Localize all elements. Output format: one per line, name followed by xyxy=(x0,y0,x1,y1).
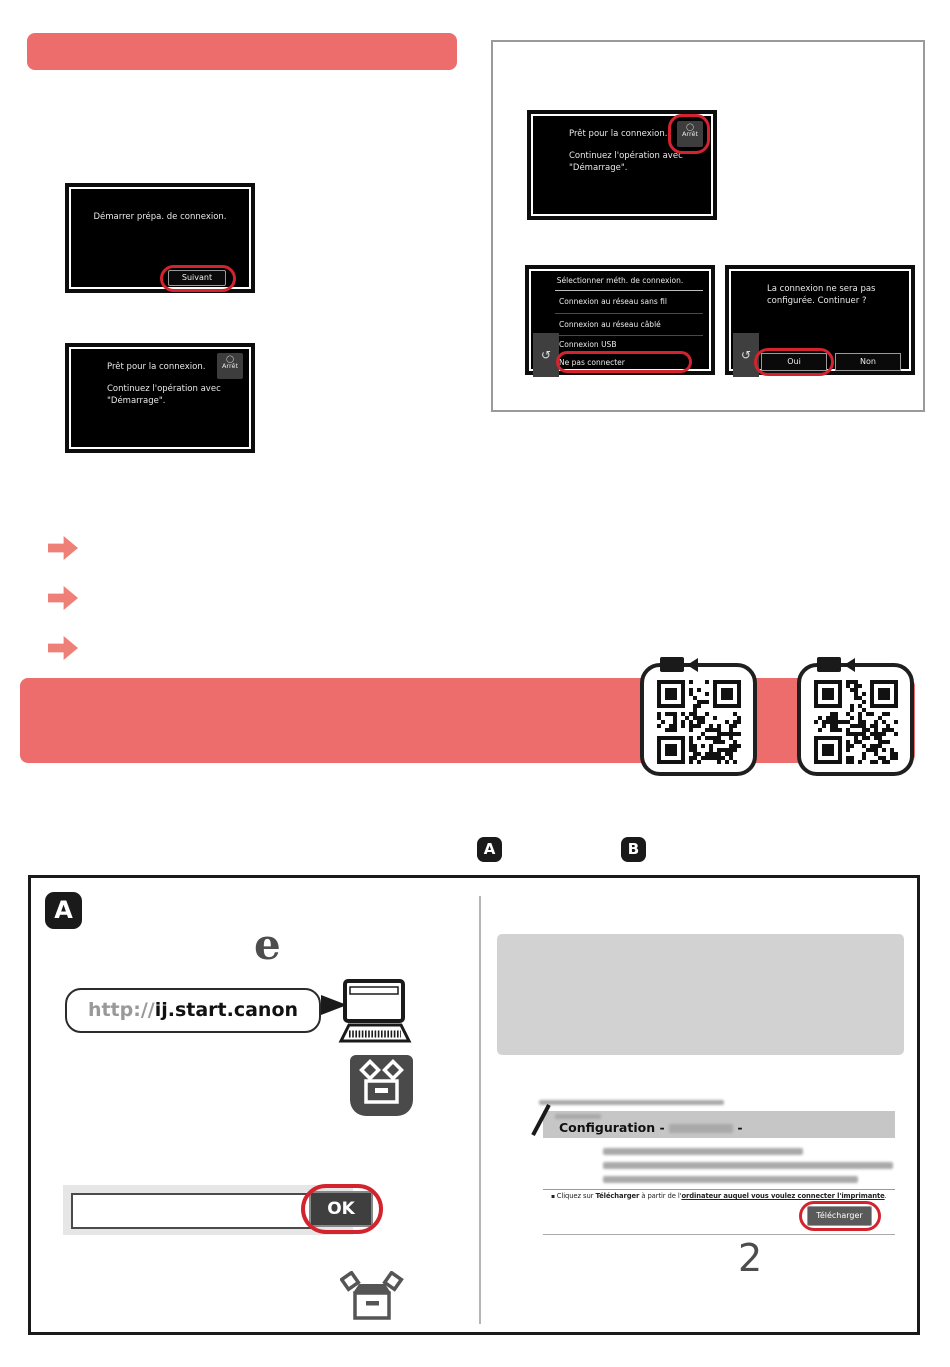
corner-mark xyxy=(531,1104,550,1136)
option-usb[interactable]: Connexion USB xyxy=(559,340,616,349)
lcd-select-method-screen: Sélectionner méth. de connexion. Connexi… xyxy=(525,265,715,375)
lcd-start-prep-message: Démarrer prépa. de connexion. xyxy=(71,211,249,223)
arrow-bullet-icon xyxy=(48,636,78,660)
section-a-badge: A xyxy=(45,892,82,929)
arrow-bullet-icon xyxy=(48,586,78,610)
back-icon: ↺ xyxy=(741,348,751,362)
back-icon: ↺ xyxy=(541,348,551,362)
lcd-ready-screen-arret: Prêt pour la connexion. Continuez l'opér… xyxy=(527,110,717,220)
ready-line1: Prêt pour la connexion. xyxy=(107,361,205,373)
qr-code-frame xyxy=(797,663,914,776)
option-wired[interactable]: Connexion au réseau câblé xyxy=(559,320,661,329)
lcd-ready-screen: Prêt pour la connexion. Continuez l'opér… xyxy=(65,343,255,453)
laptop-icon xyxy=(333,979,417,1051)
serial-entry-strip: OK xyxy=(63,1185,353,1235)
url-prefix: http:// xyxy=(88,999,155,1021)
qr-code-frame xyxy=(640,663,757,776)
step-number: 2 xyxy=(738,1236,762,1280)
suivant-highlight-ring xyxy=(160,265,236,292)
non-button[interactable]: Non xyxy=(835,353,901,371)
ready-line3: "Démarrage". xyxy=(569,162,627,174)
arret-label: Arrêt xyxy=(222,362,238,370)
back-panel[interactable]: ↺ xyxy=(533,333,559,377)
video-banner xyxy=(20,678,915,763)
arret-highlight-ring xyxy=(668,114,710,154)
lcd-confirm-screen: La connexion ne sera pas configurée. Con… xyxy=(725,265,915,375)
qr-code xyxy=(657,680,741,768)
ready-line2: Continuez l'opération avec xyxy=(107,383,221,395)
option-wireless[interactable]: Connexion au réseau sans fil xyxy=(559,297,667,306)
lcd-start-prep-screen: Démarrer prépa. de connexion. Suivant xyxy=(65,183,255,293)
ready-line1: Prêt pour la connexion. xyxy=(569,128,667,140)
video-camera-lens-icon xyxy=(844,658,855,672)
url-bubble[interactable]: http://ij.start.canon xyxy=(65,988,321,1033)
video-camera-lens-icon xyxy=(687,658,698,672)
reference-panel: Prêt pour la connexion. Continuez l'opér… xyxy=(491,40,925,412)
arret-button[interactable]: ◯ Arrêt xyxy=(217,353,243,379)
video-camera-icon xyxy=(817,657,841,672)
video-camera-icon xyxy=(660,657,684,672)
confirm-line1: La connexion ne sera pas xyxy=(767,283,875,295)
config-screenshot: Configuration - - Cliquez sur Télécharge… xyxy=(535,1096,895,1231)
select-method-title: Sélectionner méth. de connexion. xyxy=(531,276,709,285)
no-connect-highlight-ring xyxy=(556,351,692,373)
label-a-badge: A xyxy=(477,837,502,862)
telecharger-highlight-ring xyxy=(799,1201,881,1231)
config-header-band: Configuration - - xyxy=(543,1111,895,1138)
serial-input[interactable] xyxy=(71,1193,311,1229)
software-box-icon xyxy=(350,1055,413,1116)
note-box xyxy=(497,934,904,1055)
qr-code xyxy=(814,680,898,768)
arrow-bullet-icon xyxy=(48,536,78,560)
column-divider xyxy=(479,896,481,1324)
ok-highlight-ring xyxy=(301,1184,383,1234)
manual-page: Démarrer prépa. de connexion. Suivant Pr… xyxy=(0,0,950,1367)
ready-line2: Continuez l'opération avec xyxy=(569,150,683,162)
label-b-badge: B xyxy=(621,837,646,862)
open-box-icon xyxy=(340,1271,404,1331)
config-title-suffix: - xyxy=(737,1120,742,1135)
url-domain: ij.start.canon xyxy=(155,999,298,1021)
ready-line3: "Démarrage". xyxy=(107,395,165,407)
oui-highlight-ring xyxy=(754,348,834,376)
confirm-line2: configurée. Continuer ? xyxy=(767,295,867,307)
edge-browser-icon: e xyxy=(254,920,281,969)
section-a-box: A e http://ij.start.canon xyxy=(28,875,920,1335)
download-instruction: Cliquez sur Télécharger à partir de l'or… xyxy=(551,1192,887,1200)
top-title-banner xyxy=(27,33,457,70)
config-title: Configuration - xyxy=(559,1120,665,1135)
